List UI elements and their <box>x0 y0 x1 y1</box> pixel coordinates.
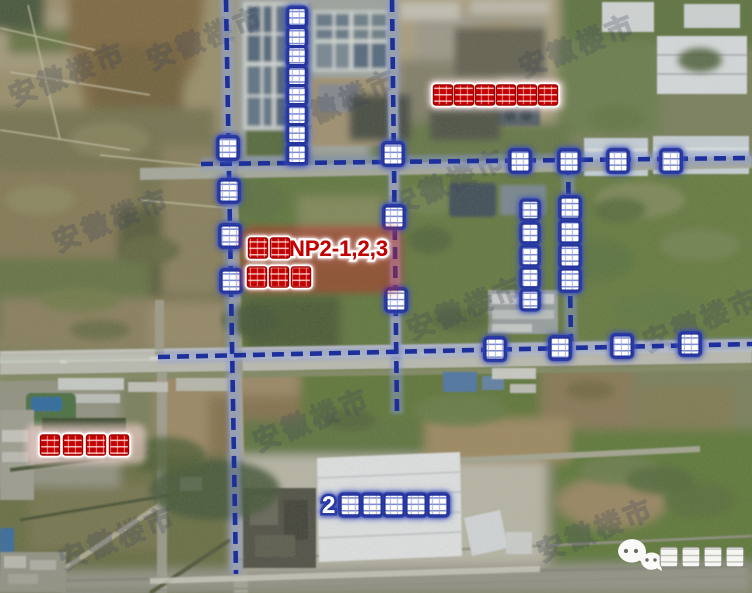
svg-text:2: 2 <box>322 492 335 519</box>
svg-text:NP2-1,2,3: NP2-1,2,3 <box>289 236 388 261</box>
